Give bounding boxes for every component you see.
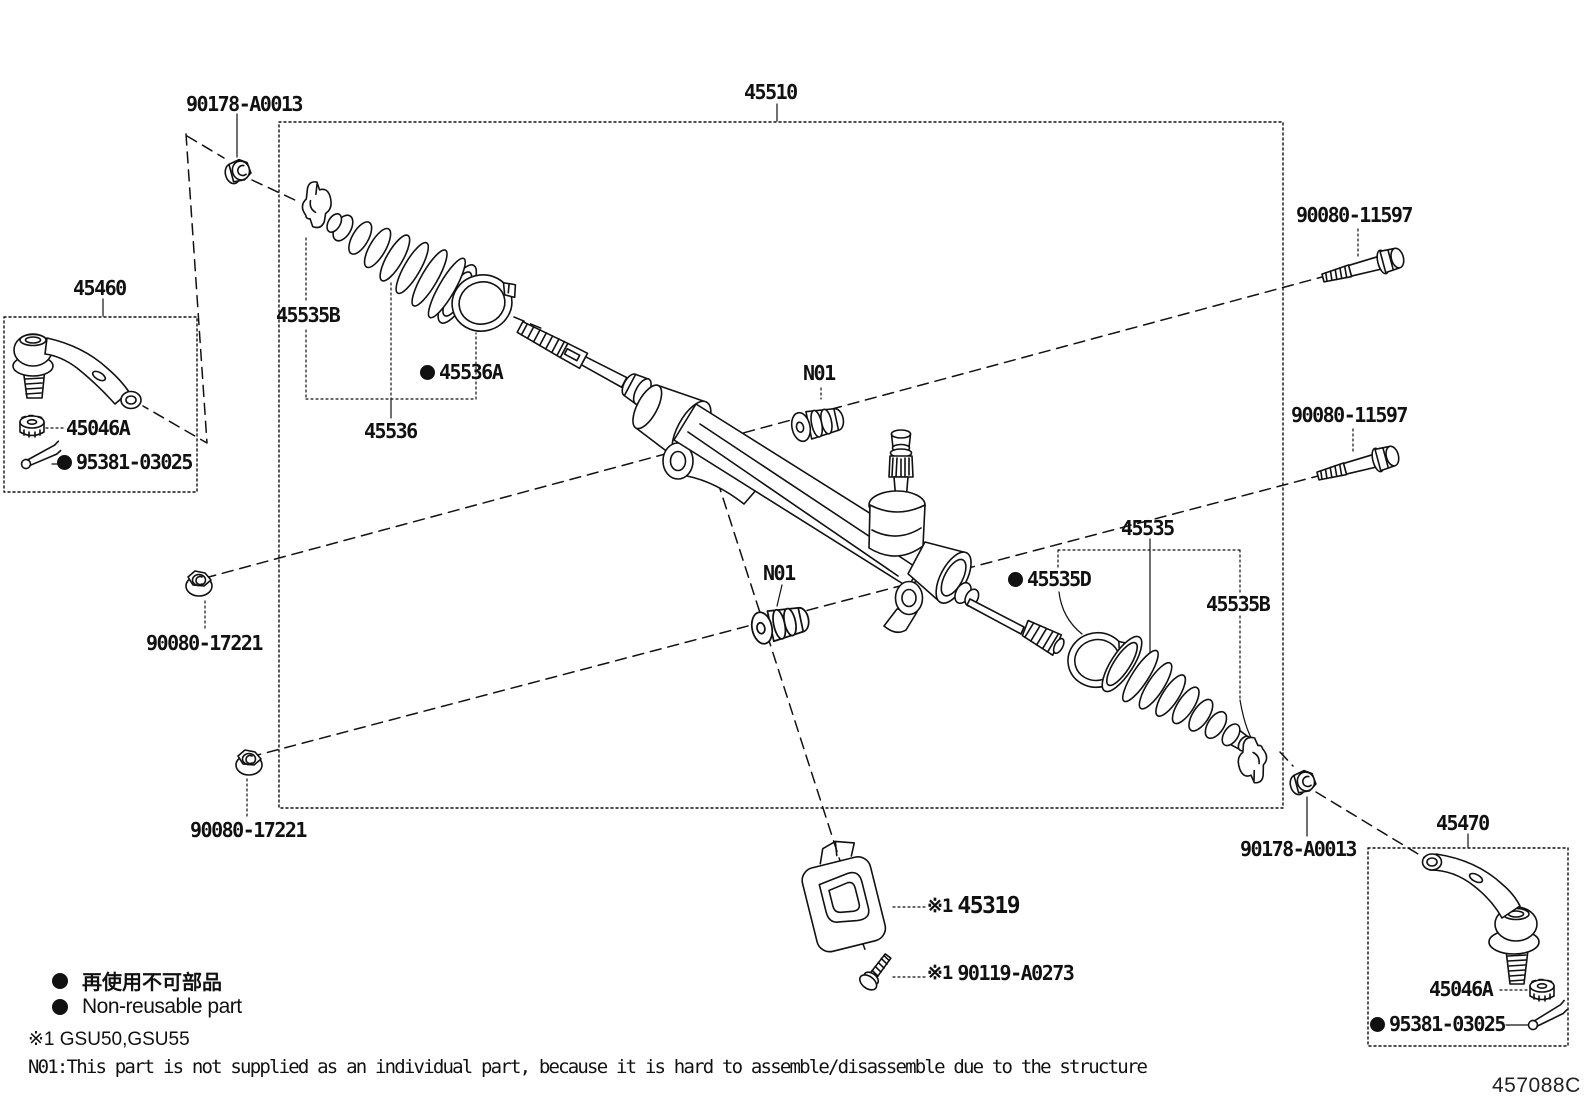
non-reusable-icon <box>1370 1017 1385 1032</box>
housing-nut-1-drawing <box>186 571 212 596</box>
diagram-line-art <box>0 0 1592 1099</box>
label-cotter-pin-left: 95381-03025 <box>57 452 192 472</box>
lock-nut-bottom-drawing <box>1288 769 1318 797</box>
label-housing-bolt-2: 90080-11597 <box>1291 405 1407 425</box>
housing-nut-2-drawing <box>236 750 262 775</box>
label-housing-nut-1: 90080-17221 <box>146 633 262 653</box>
label-boot-clamp-b-left: 45535B <box>276 305 339 325</box>
housing-bolt-2-drawing <box>1315 443 1401 488</box>
left-inner-tie-rod-drawing <box>516 319 628 389</box>
label-boot-left: 45536 <box>364 421 417 441</box>
label-castle-nut-left: 45046A <box>66 418 129 438</box>
legend-note-n01: N01:This part is not supplied as an indi… <box>28 1056 1146 1078</box>
right-mount-ear-drawing <box>884 582 923 633</box>
non-reusable-icon <box>57 455 72 470</box>
label-cotter-pin-right: 95381-03025 <box>1370 1014 1505 1034</box>
label-assembly: 45510 <box>744 82 797 102</box>
column-hole-cover-drawing <box>795 835 889 955</box>
label-boot-clamp-d: 45535D <box>1008 569 1090 589</box>
label-lock-nut-bottom: 90178-A0013 <box>1240 839 1356 859</box>
label-lock-nut-top: 90178-A0013 <box>186 94 302 114</box>
castle-nut-right-drawing <box>1530 980 1554 1002</box>
label-cover-bolt: ※190119-A0273 <box>927 963 1073 983</box>
non-reusable-icon <box>52 973 68 989</box>
legend-non-reusable-en: Non-reusable part <box>52 995 242 1019</box>
assembly-axis-dashed-lines <box>143 134 1428 955</box>
legend-ref-applicability: ※1 GSU50,GSU55 <box>28 1028 190 1051</box>
cover-bolt-drawing <box>857 950 896 993</box>
label-castle-nut-right: 45046A <box>1429 979 1492 999</box>
non-reusable-icon <box>1008 572 1023 587</box>
label-column-hole-cover: ※145319 <box>927 895 1019 918</box>
label-tie-rod-left: 45460 <box>73 278 126 298</box>
right-inner-tie-rod-drawing <box>952 580 1068 658</box>
label-bushing-n01-top: N01 <box>803 363 835 383</box>
label-housing-nut-2: 90080-17221 <box>190 820 306 840</box>
label-boot-clamp-a: 45536A <box>420 362 502 382</box>
non-reusable-icon <box>52 999 68 1015</box>
steering-rack-drawing <box>516 319 1067 657</box>
label-boot-right: 45535 <box>1121 518 1174 538</box>
non-reusable-icon <box>420 365 435 380</box>
label-housing-bolt-1: 90080-11597 <box>1296 205 1412 225</box>
cotter-pin-right-drawing <box>1526 1001 1570 1032</box>
label-bushing-n01-bottom: N01 <box>763 563 795 583</box>
steering-gear-parts-diagram: 90178-A0013 45510 45460 45535B 45536A 45… <box>0 0 1592 1099</box>
tie-rod-end-right-drawing <box>1423 854 1540 984</box>
label-tie-rod-right: 45470 <box>1436 813 1489 833</box>
tie-rod-end-left-drawing <box>13 334 141 409</box>
diagram-code: 457088C <box>1492 1074 1581 1098</box>
castle-nut-left-drawing <box>20 416 44 438</box>
legend-non-reusable-jp: 再使用不可部品 <box>52 966 222 995</box>
mount-bushing-1-drawing <box>789 404 846 443</box>
label-boot-clamp-b-right: 45535B <box>1206 594 1269 614</box>
lock-nut-top-drawing <box>223 158 253 186</box>
housing-bolt-1-drawing <box>1320 245 1406 290</box>
